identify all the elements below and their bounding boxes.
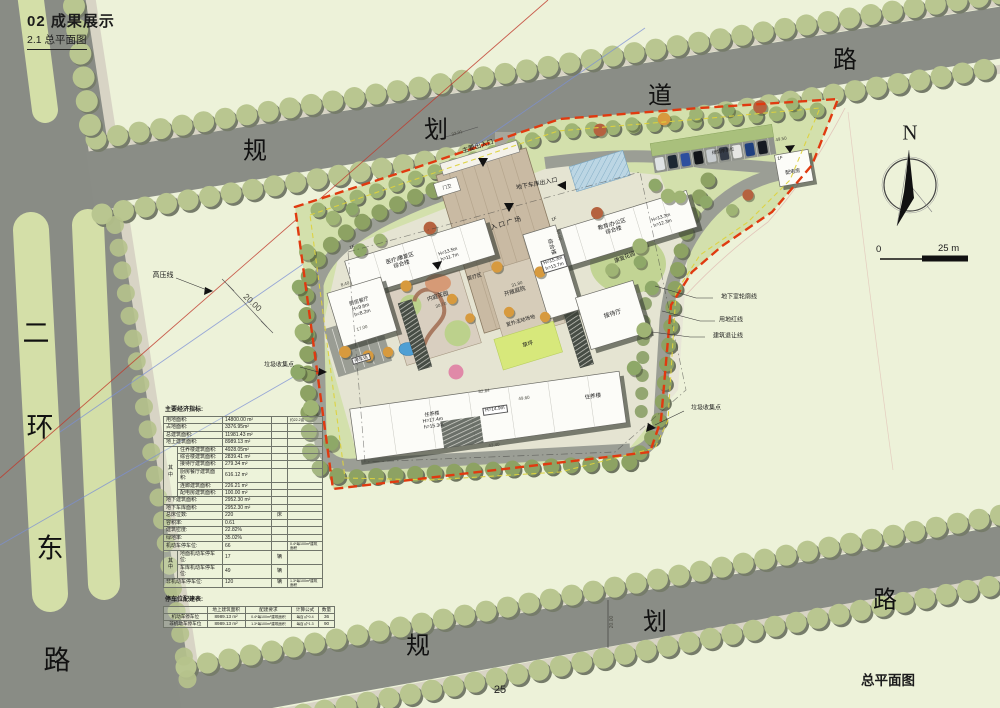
power-room-floor: 1F [777,155,783,161]
drawing-caption: 总平面图 [861,669,915,689]
page-title: 02 成果展示 [27,10,115,31]
site-plan-page: 02 成果展示 2.1 总平面图 规 划 道 路 二 环 东 路 规 划 路 N… [0,0,1000,708]
trash-point-left-label: 垃圾收集点 [264,363,294,370]
bottom-road-label: 路 [873,580,897,615]
left-road-label: 东 [37,527,64,566]
dim-2000-bottom: 20.00 [610,616,616,629]
top-road-label: 划 [424,110,448,145]
trash-point-right-label: 垃圾收集点 [691,406,721,413]
hv-line-label: 高压线 [153,272,174,280]
main-table-title: 主要经济指标: [165,404,373,413]
scale-max: 25 m [938,243,959,254]
site-plan-graphic [0,0,1000,708]
top-road-label: 规 [243,131,267,166]
resident-building-label: 住养楼 H=17.4m h=15.3m [422,411,445,431]
pink-feature [449,365,464,380]
bottom-road-label: 规 [406,626,430,661]
main-indicator-table: 用地面积:14800.00 m²约22.2亩 占地面积:3376.95m² 总建… [163,416,323,588]
page-subtitle: 2.1 总平面图 [27,32,87,50]
top-road-label: 路 [833,40,857,75]
setback-line-label: 建筑退让线 [713,334,743,341]
left-road-label: 二 [23,312,50,351]
bottom-road-label: 划 [643,602,667,637]
land-red-line-label: 用地红线 [719,318,743,325]
left-road-label: 环 [27,406,54,445]
economic-indicator-panel: 主要经济指标: 用地面积:14800.00 m²约22.2亩 占地面积:3376… [163,404,373,628]
page-number: 25 [494,684,506,696]
parking-allocation-table: 地上建筑面积 配建要求 计算公式 数量 机动车停车位 8989.13 m² 0.… [163,606,335,628]
underground-line-label: 地下室轮廓线 [721,295,757,302]
scale-zero: 0 [876,244,881,255]
parking-table-title: 停车位配建表: [165,594,373,603]
top-road-label: 道 [648,76,672,111]
north-label: N [902,121,917,146]
left-road-label: 路 [44,639,71,678]
